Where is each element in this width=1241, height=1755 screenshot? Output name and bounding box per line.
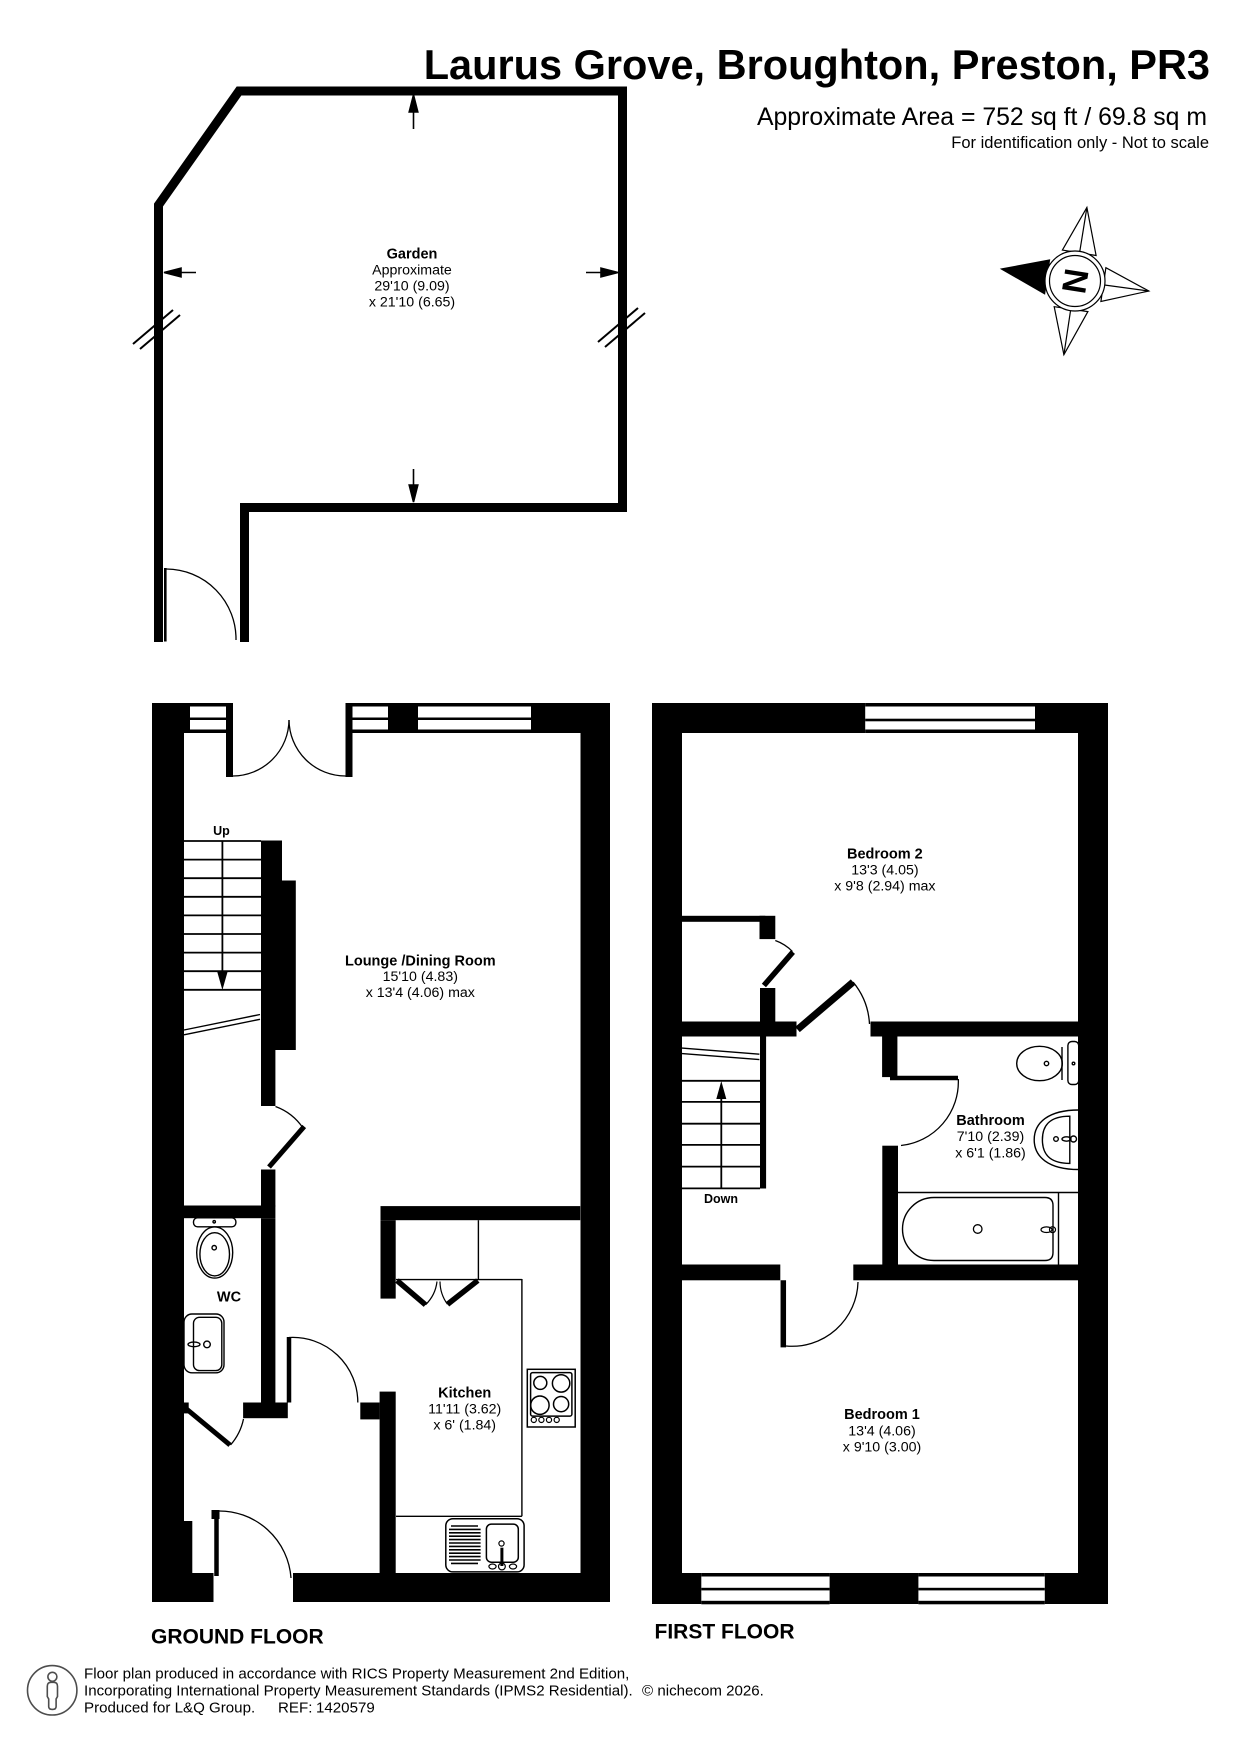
svg-text:© nichecom 2026.: © nichecom 2026. <box>642 1683 764 1700</box>
svg-text:Down: Down <box>704 1192 738 1206</box>
svg-text:Approximate Area = 752 sq ft /: Approximate Area = 752 sq ft / 69.8 sq m <box>757 104 1207 131</box>
svg-text:GROUND FLOOR: GROUND FLOOR <box>151 1626 324 1649</box>
svg-text:REF:: REF: <box>278 1700 312 1717</box>
svg-text:x 9'8 (2.94) max: x 9'8 (2.94) max <box>834 879 935 895</box>
svg-text:Garden: Garden <box>387 246 438 262</box>
svg-text:Produced for L&Q Group.: Produced for L&Q Group. <box>84 1700 255 1717</box>
svg-text:Kitchen: Kitchen <box>438 1385 491 1401</box>
svg-text:7'10 (2.39): 7'10 (2.39) <box>957 1129 1024 1145</box>
svg-text:Laurus Grove, Broughton, Prest: Laurus Grove, Broughton, Preston, PR3 <box>424 41 1210 88</box>
svg-text:WC: WC <box>217 1290 242 1306</box>
svg-text:Bedroom 2: Bedroom 2 <box>847 847 923 863</box>
svg-text:Incorporating International Pr: Incorporating International Property Mea… <box>84 1683 633 1700</box>
svg-text:x 21'10 (6.65): x 21'10 (6.65) <box>369 295 455 311</box>
svg-text:13'3 (4.05): 13'3 (4.05) <box>851 863 918 879</box>
svg-text:13'4 (4.06): 13'4 (4.06) <box>848 1423 915 1439</box>
svg-text:Lounge /Dining Room: Lounge /Dining Room <box>345 953 496 969</box>
svg-text:15'10 (4.83): 15'10 (4.83) <box>383 969 458 985</box>
svg-text:1420579: 1420579 <box>316 1700 375 1717</box>
svg-text:For identification only - Not: For identification only - Not to scale <box>951 134 1209 152</box>
svg-text:29'10 (9.09): 29'10 (9.09) <box>374 279 449 295</box>
svg-text:Bedroom 1: Bedroom 1 <box>844 1407 920 1423</box>
svg-text:11'11 (3.62): 11'11 (3.62) <box>428 1402 501 1418</box>
svg-text:x 13'4 (4.06) max: x 13'4 (4.06) max <box>366 985 475 1001</box>
svg-text:Floor plan produced in accorda: Floor plan produced in accordance with R… <box>84 1666 629 1683</box>
svg-text:Bathroom: Bathroom <box>956 1113 1024 1129</box>
svg-text:FIRST FLOOR: FIRST FLOOR <box>655 1621 795 1644</box>
svg-text:x 9'10 (3.00): x 9'10 (3.00) <box>843 1440 921 1456</box>
svg-text:Up: Up <box>213 824 230 838</box>
svg-text:x 6' (1.84): x 6' (1.84) <box>433 1418 496 1434</box>
svg-text:x 6'1 (1.86): x 6'1 (1.86) <box>955 1145 1026 1161</box>
svg-text:Approximate: Approximate <box>372 263 452 279</box>
